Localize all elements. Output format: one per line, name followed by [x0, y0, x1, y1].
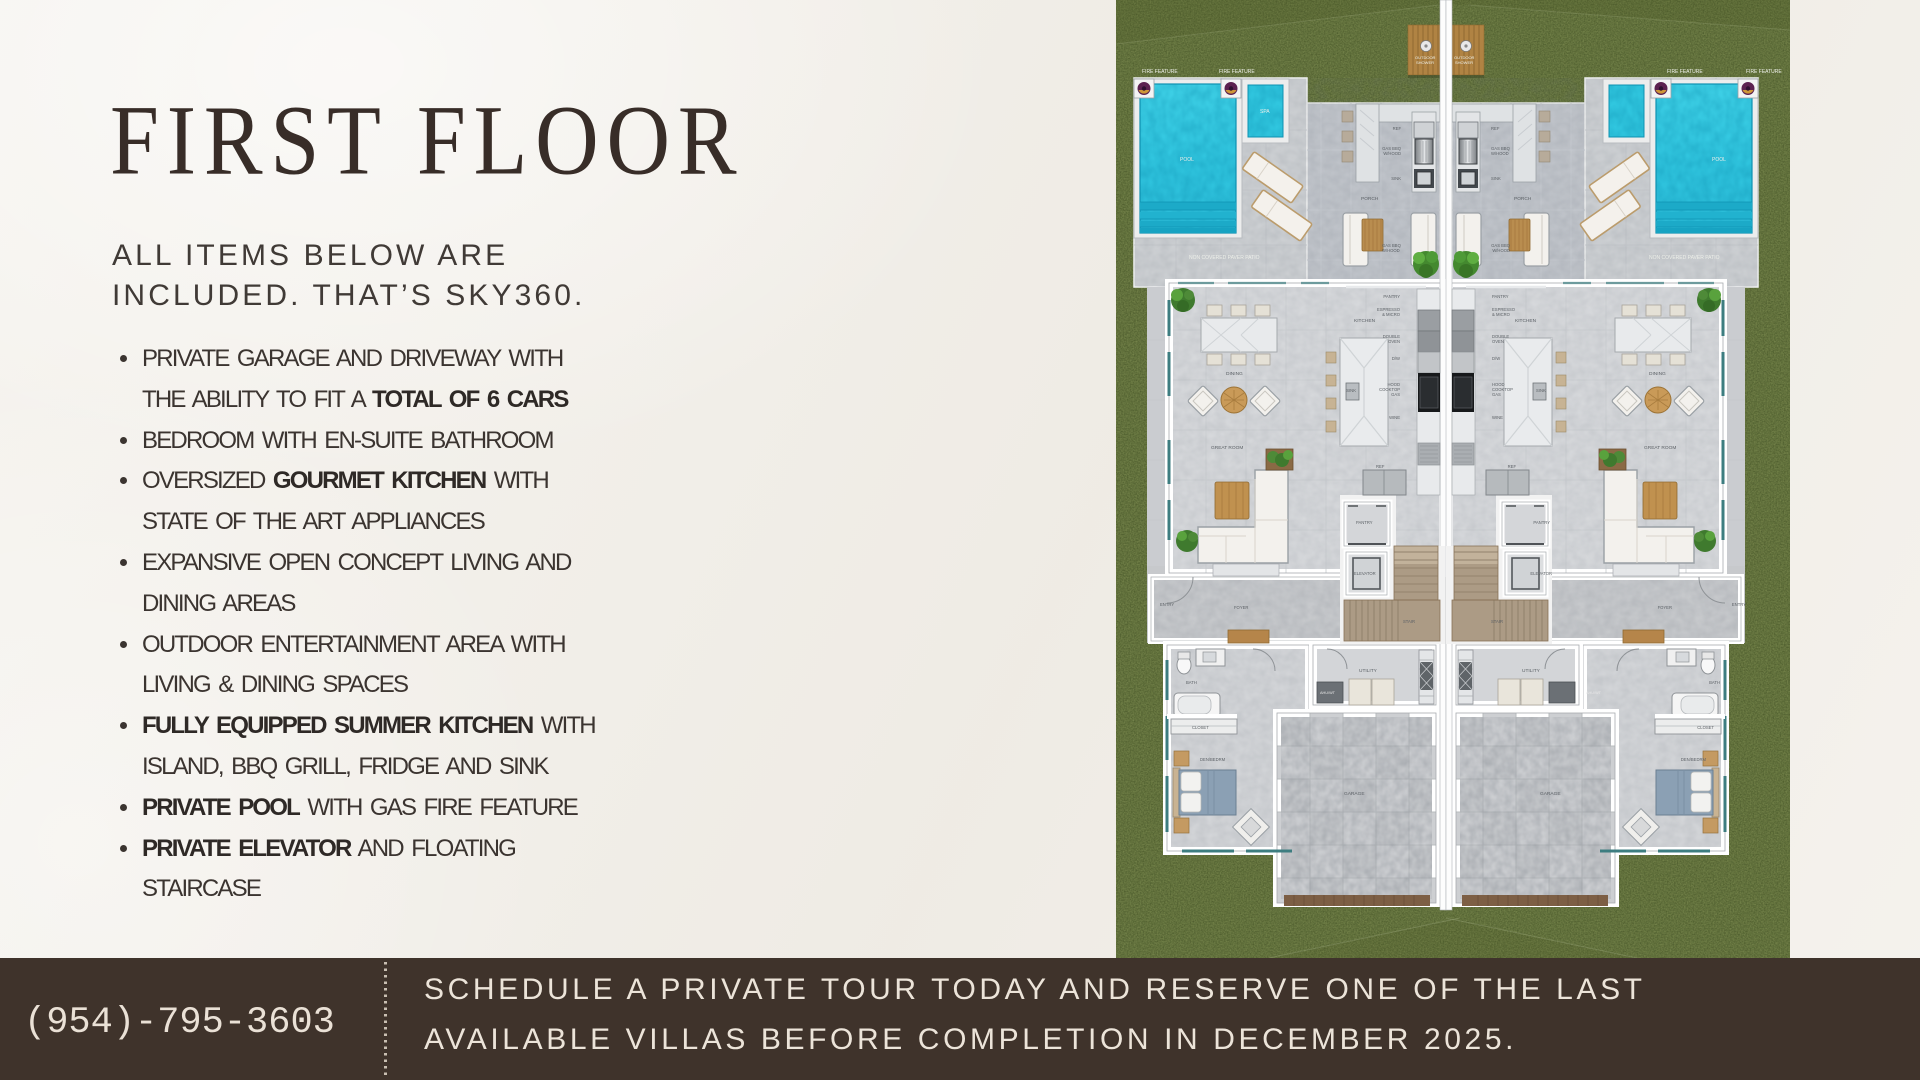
svg-text:W/HOOD: W/HOOD	[1492, 248, 1510, 253]
svg-text:ENTRY: ENTRY	[1732, 602, 1746, 607]
svg-text:PANTRY: PANTRY	[1533, 520, 1550, 525]
svg-text:PANTRY: PANTRY	[1492, 294, 1509, 299]
svg-text:STAIR: STAIR	[1491, 619, 1503, 624]
svg-text:D/W: D/W	[1492, 356, 1500, 361]
svg-text:W/HOOD: W/HOOD	[1383, 151, 1401, 156]
svg-text:ENTRY: ENTRY	[1160, 602, 1174, 607]
svg-text:WINE: WINE	[1492, 415, 1503, 420]
svg-text:SINK: SINK	[1391, 176, 1401, 181]
svg-text:CLOSET: CLOSET	[1192, 725, 1209, 730]
svg-text:OVEN: OVEN	[1492, 339, 1504, 344]
svg-text:AHU/WT: AHU/WT	[1320, 691, 1336, 695]
svg-text:KITCHEN: KITCHEN	[1515, 318, 1537, 324]
svg-text:REF: REF	[1508, 464, 1517, 469]
svg-text:FOYER: FOYER	[1234, 605, 1248, 610]
svg-text:W/HOOD: W/HOOD	[1491, 151, 1509, 156]
svg-text:D/W: D/W	[1392, 356, 1400, 361]
svg-text:POOL: POOL	[1180, 157, 1194, 163]
svg-text:& MICRO: & MICRO	[1492, 312, 1511, 317]
svg-text:UTILITY: UTILITY	[1522, 668, 1541, 674]
svg-text:REF: REF	[1393, 126, 1402, 131]
svg-text:GREAT ROOM: GREAT ROOM	[1211, 445, 1243, 451]
svg-text:ELEVATOR: ELEVATOR	[1354, 571, 1376, 576]
svg-text:PORCH: PORCH	[1361, 196, 1379, 202]
svg-text:BATH: BATH	[1186, 680, 1197, 685]
svg-text:GAS: GAS	[1492, 392, 1501, 397]
svg-text:PANTRY: PANTRY	[1356, 520, 1373, 525]
svg-text:FOYER: FOYER	[1658, 605, 1672, 610]
svg-text:AHU/WT: AHU/WT	[1586, 691, 1602, 695]
svg-text:GARAGE: GARAGE	[1344, 791, 1365, 797]
svg-text:UTILITY: UTILITY	[1359, 668, 1378, 674]
svg-text:DINING: DINING	[1226, 371, 1243, 377]
svg-text:FIRE FEATURE: FIRE FEATURE	[1667, 69, 1703, 75]
svg-text:GAS: GAS	[1391, 392, 1400, 397]
svg-text:FIRE FEATURE: FIRE FEATURE	[1219, 69, 1255, 75]
svg-text:REF: REF	[1376, 464, 1385, 469]
svg-text:ELEVATOR: ELEVATOR	[1530, 571, 1552, 576]
svg-text:SINK: SINK	[1491, 176, 1501, 181]
svg-text:REF: REF	[1491, 126, 1500, 131]
svg-text:DEN/BEDRM: DEN/BEDRM	[1681, 757, 1707, 762]
svg-text:SINK: SINK	[1346, 388, 1356, 393]
svg-text:OVEN: OVEN	[1388, 339, 1400, 344]
svg-text:PORCH: PORCH	[1514, 196, 1532, 202]
svg-text:FIRE FEATURE: FIRE FEATURE	[1746, 69, 1782, 75]
svg-text:DEN/BEDRM: DEN/BEDRM	[1200, 757, 1226, 762]
svg-text:STAIR: STAIR	[1403, 619, 1415, 624]
svg-text:CLOSET: CLOSET	[1697, 725, 1714, 730]
svg-text:GREAT ROOM: GREAT ROOM	[1644, 445, 1676, 451]
svg-text:WINE: WINE	[1389, 415, 1400, 420]
svg-text:DINING: DINING	[1649, 371, 1666, 377]
svg-text:W/HOOD: W/HOOD	[1382, 248, 1400, 253]
svg-text:SPA: SPA	[1260, 109, 1270, 115]
svg-text:GARAGE: GARAGE	[1540, 791, 1561, 797]
svg-text:BATH: BATH	[1709, 680, 1720, 685]
svg-text:NON COVERED PAVER PATIO: NON COVERED PAVER PATIO	[1189, 255, 1260, 261]
svg-text:SINK: SINK	[1536, 388, 1546, 393]
svg-text:& MICRO: & MICRO	[1382, 312, 1401, 317]
svg-text:SHOWER: SHOWER	[1455, 60, 1473, 65]
svg-text:KITCHEN: KITCHEN	[1354, 318, 1376, 324]
svg-text:FIRE FEATURE: FIRE FEATURE	[1142, 69, 1178, 75]
svg-text:NON COVERED PAVER PATIO: NON COVERED PAVER PATIO	[1649, 255, 1720, 261]
svg-text:PANTRY: PANTRY	[1383, 294, 1400, 299]
svg-text:SHOWER: SHOWER	[1416, 60, 1434, 65]
svg-text:POOL: POOL	[1712, 157, 1726, 163]
